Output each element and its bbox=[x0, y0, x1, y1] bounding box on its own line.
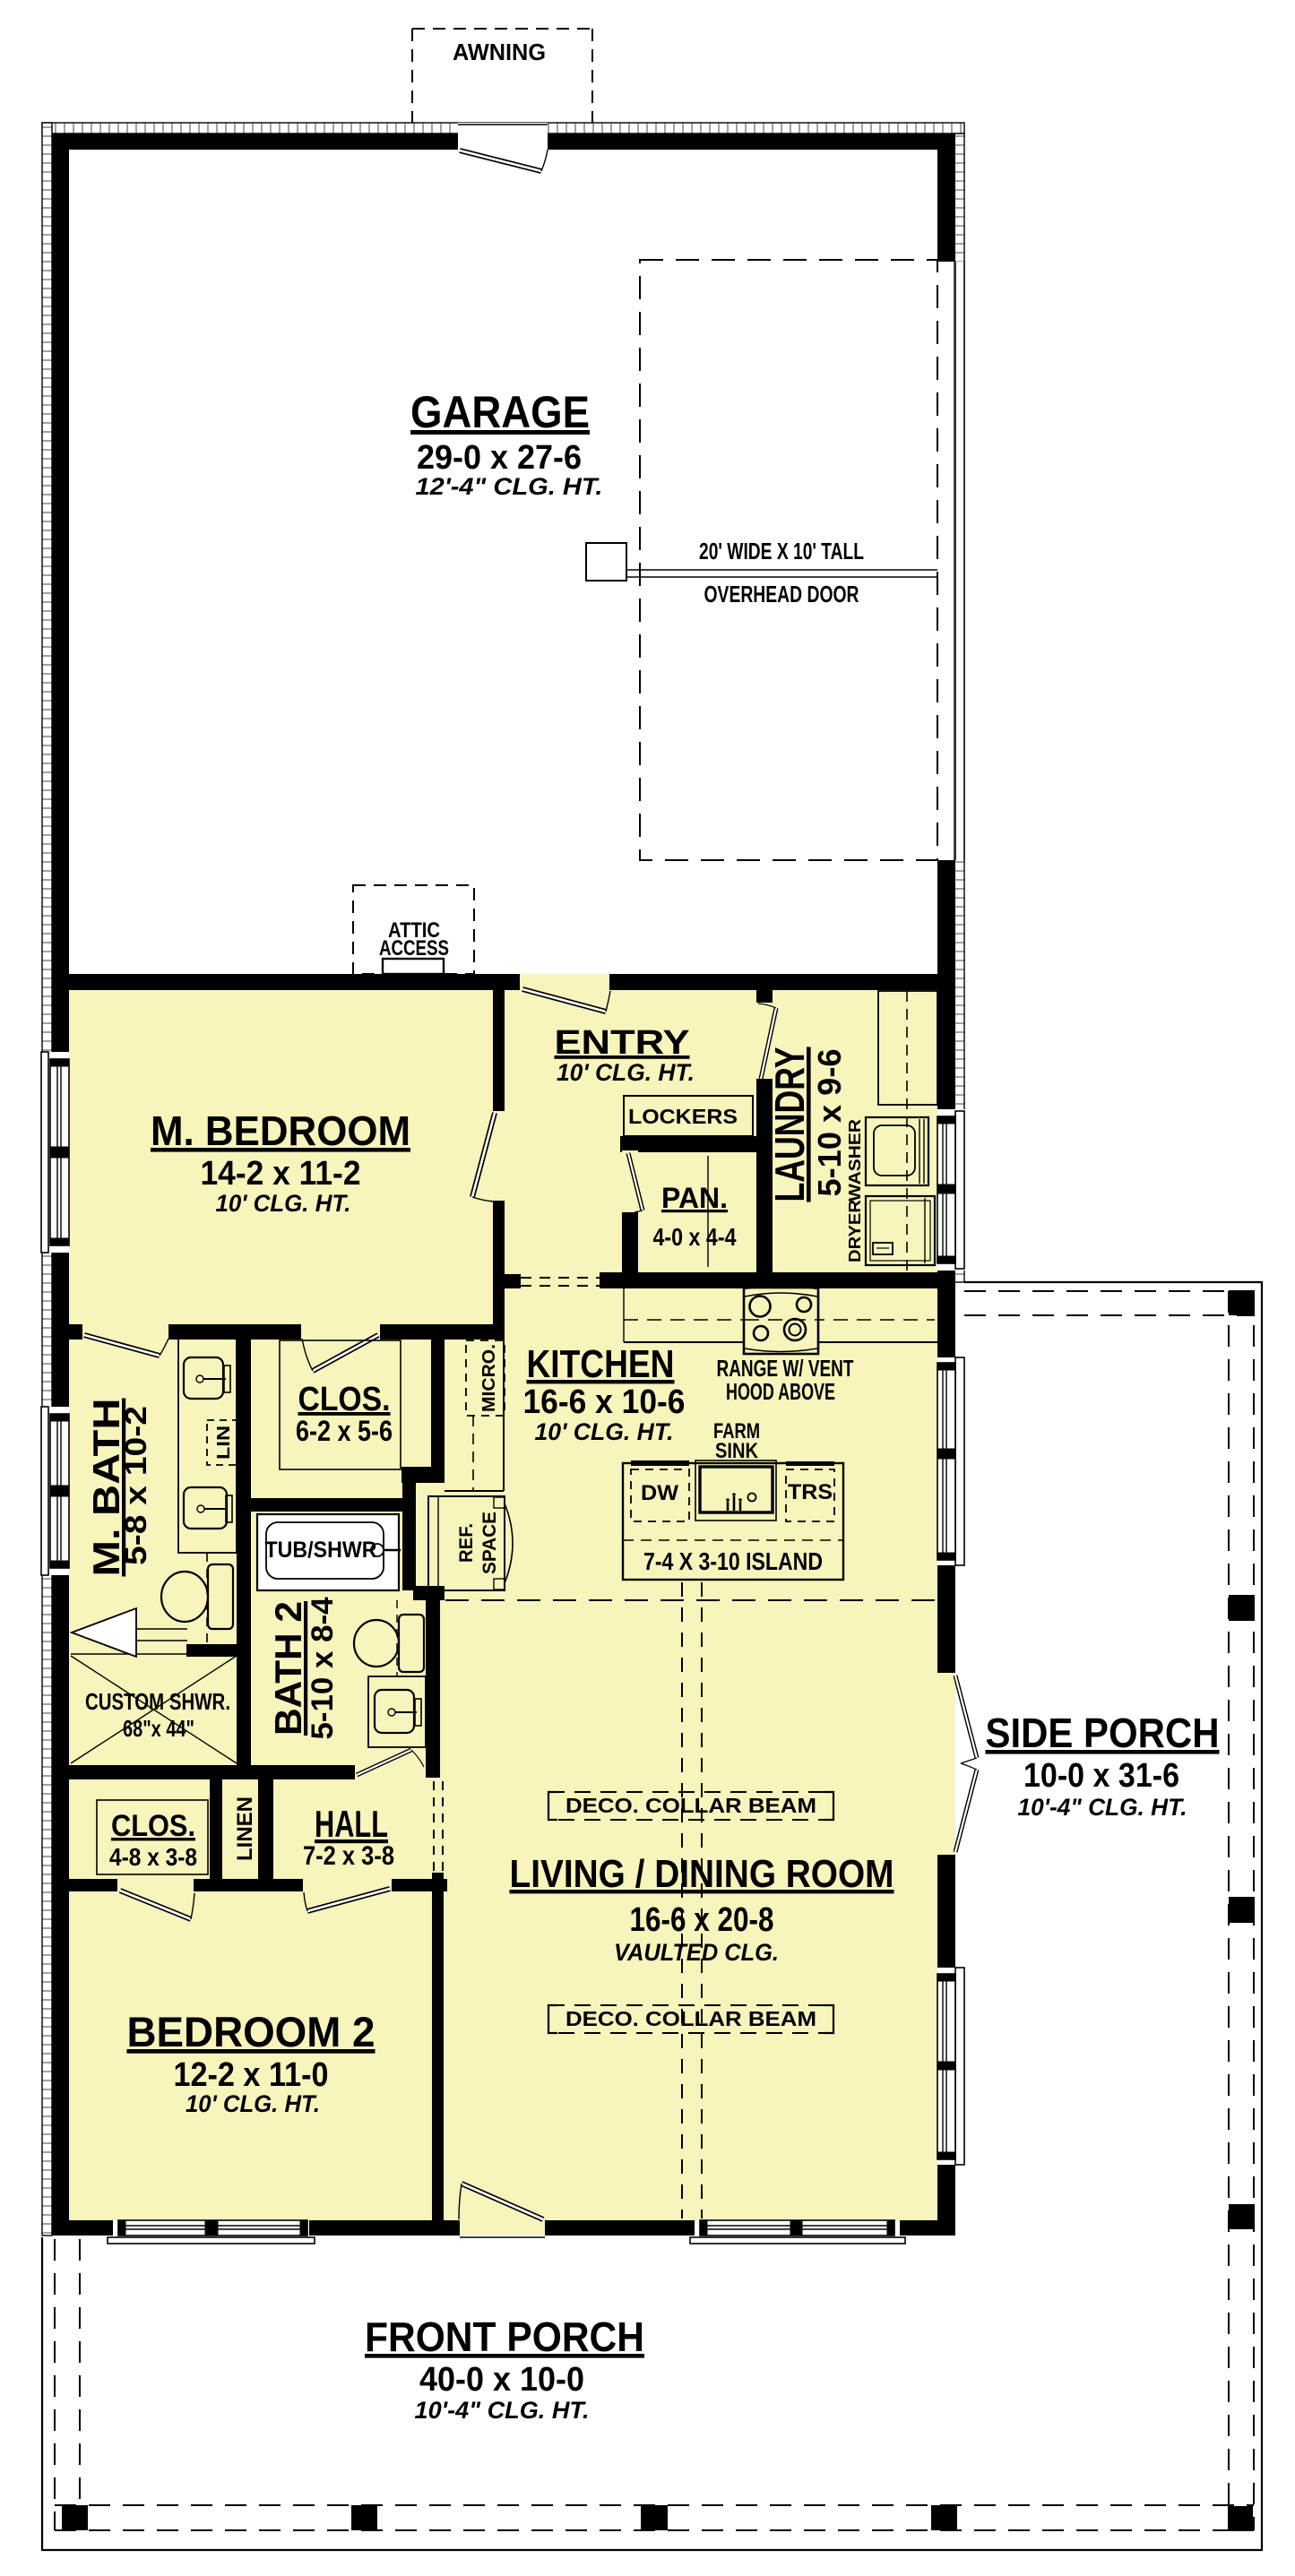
svg-text:7-4 X 3-10 ISLAND: 7-4 X 3-10 ISLAND bbox=[643, 1547, 823, 1575]
svg-text:16-6 x 20-8: 16-6 x 20-8 bbox=[630, 1901, 774, 1939]
svg-text:VAULTED CLG.: VAULTED CLG. bbox=[614, 1939, 779, 1966]
svg-text:CLOS.: CLOS. bbox=[111, 1809, 195, 1843]
svg-text:5-10 x 9-6: 5-10 x 9-6 bbox=[811, 1049, 848, 1197]
svg-text:HOOD ABOVE: HOOD ABOVE bbox=[726, 1378, 835, 1405]
svg-text:AWNING: AWNING bbox=[453, 39, 546, 65]
svg-text:DECO. COLLAR BEAM: DECO. COLLAR BEAM bbox=[565, 1794, 816, 1817]
svg-text:10'-4" CLG. HT.: 10'-4" CLG. HT. bbox=[415, 2397, 590, 2424]
svg-text:10'-4" CLG. HT.: 10'-4" CLG. HT. bbox=[1018, 1794, 1187, 1821]
svg-text:OVERHEAD DOOR: OVERHEAD DOOR bbox=[704, 581, 859, 607]
svg-text:SIDE PORCH: SIDE PORCH bbox=[986, 1710, 1220, 1756]
svg-text:10' CLG. HT.: 10' CLG. HT. bbox=[535, 1418, 674, 1445]
svg-text:14-2 x 11-2: 14-2 x 11-2 bbox=[201, 1155, 361, 1193]
svg-text:BEDROOM 2: BEDROOM 2 bbox=[127, 2008, 376, 2055]
svg-text:DECO. COLLAR BEAM: DECO. COLLAR BEAM bbox=[565, 2007, 816, 2030]
svg-text:ACCESS: ACCESS bbox=[379, 936, 449, 961]
svg-text:12'-4" CLG. HT.: 12'-4" CLG. HT. bbox=[416, 473, 603, 500]
svg-text:SPACE: SPACE bbox=[479, 1512, 500, 1574]
svg-text:10' CLG. HT.: 10' CLG. HT. bbox=[557, 1059, 695, 1086]
svg-text:CUSTOM SHWR.: CUSTOM SHWR. bbox=[85, 1688, 230, 1715]
svg-text:20' WIDE X 10' TALL: 20' WIDE X 10' TALL bbox=[699, 538, 864, 564]
svg-text:SINK: SINK bbox=[715, 1439, 759, 1463]
svg-text:TUB/SHWR: TUB/SHWR bbox=[265, 1538, 377, 1563]
svg-text:4-0 x 4-4: 4-0 x 4-4 bbox=[653, 1223, 737, 1251]
svg-text:10' CLG. HT.: 10' CLG. HT. bbox=[216, 1190, 351, 1217]
svg-text:5-10 x 8-4: 5-10 x 8-4 bbox=[306, 1597, 340, 1739]
svg-text:10' CLG. HT.: 10' CLG. HT. bbox=[186, 2090, 320, 2117]
svg-text:29-0 x 27-6: 29-0 x 27-6 bbox=[417, 439, 582, 477]
svg-text:DW: DW bbox=[641, 1481, 678, 1505]
svg-text:68"x 44": 68"x 44" bbox=[123, 1715, 194, 1742]
svg-text:LIN: LIN bbox=[214, 1426, 234, 1460]
svg-text:BATH 2: BATH 2 bbox=[267, 1601, 309, 1736]
svg-text:MICRO.: MICRO. bbox=[479, 1344, 499, 1412]
svg-text:TRS: TRS bbox=[788, 1480, 833, 1504]
svg-text:ENTRY: ENTRY bbox=[555, 1024, 690, 1062]
svg-text:HALL: HALL bbox=[315, 1803, 388, 1845]
svg-text:7-2 x 3-8: 7-2 x 3-8 bbox=[303, 1841, 394, 1871]
svg-text:LAUNDRY: LAUNDRY bbox=[766, 1047, 813, 1202]
svg-text:6-2 x 5-6: 6-2 x 5-6 bbox=[296, 1415, 393, 1447]
svg-text:16-6 x 10-6: 16-6 x 10-6 bbox=[523, 1383, 686, 1421]
svg-text:4-8 x 3-8: 4-8 x 3-8 bbox=[109, 1843, 197, 1871]
svg-text:5-8 x 10-2: 5-8 x 10-2 bbox=[119, 1406, 153, 1565]
svg-text:KITCHEN: KITCHEN bbox=[527, 1342, 675, 1386]
svg-text:40-0 x 10-0: 40-0 x 10-0 bbox=[419, 2361, 584, 2399]
svg-text:GARAGE: GARAGE bbox=[410, 387, 590, 437]
svg-text:REF.: REF. bbox=[456, 1523, 477, 1563]
svg-text:CLOS.: CLOS. bbox=[298, 1381, 391, 1418]
svg-text:LINEN: LINEN bbox=[233, 1796, 257, 1861]
svg-text:FRONT PORCH: FRONT PORCH bbox=[365, 2313, 644, 2360]
svg-text:LOCKERS: LOCKERS bbox=[628, 1105, 738, 1128]
svg-text:LIVING / DINING ROOM: LIVING / DINING ROOM bbox=[510, 1852, 894, 1896]
svg-text:PAN.: PAN. bbox=[661, 1182, 728, 1214]
svg-text:10-0 x 31-6: 10-0 x 31-6 bbox=[1023, 1757, 1179, 1795]
svg-text:M. BEDROOM: M. BEDROOM bbox=[151, 1107, 410, 1154]
svg-text:12-2 x 11-0: 12-2 x 11-0 bbox=[174, 2056, 329, 2094]
svg-text:DRYER: DRYER bbox=[846, 1200, 864, 1262]
svg-text:WASHER: WASHER bbox=[846, 1119, 864, 1202]
